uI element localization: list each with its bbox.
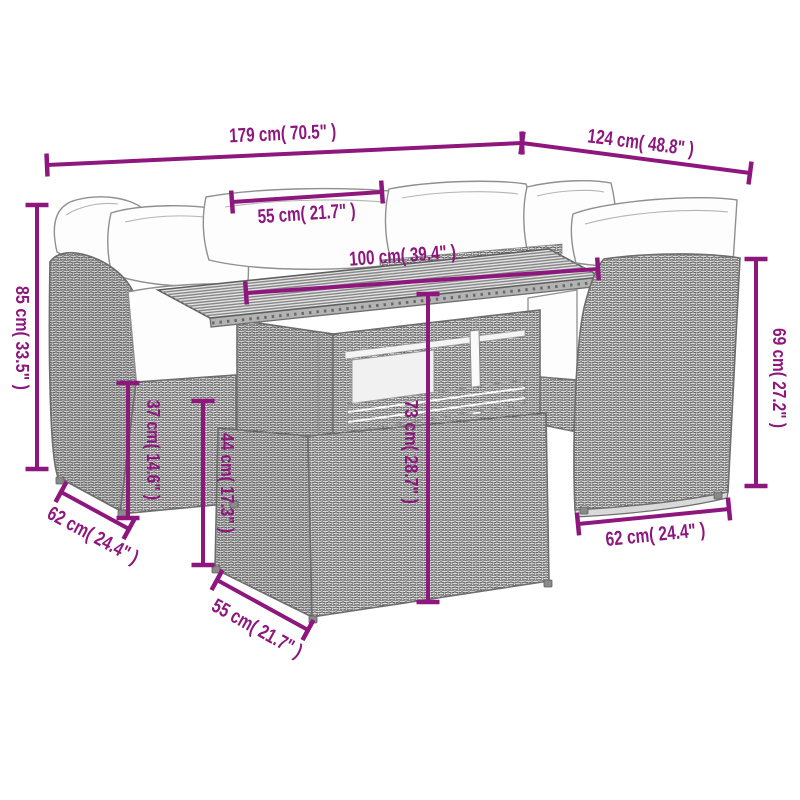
- svg-text:85 cm( 33.5" ): 85 cm( 33.5" ): [12, 286, 32, 390]
- svg-text:44 cm( 17.3" ): 44 cm( 17.3" ): [217, 433, 237, 533]
- svg-text:69 cm( 27.2" ): 69 cm( 27.2" ): [769, 328, 789, 428]
- svg-text:37 cm( 14.6" ): 37 cm( 14.6" ): [143, 400, 163, 500]
- svg-text:73 cm( 28.7" ): 73 cm( 28.7" ): [401, 400, 421, 504]
